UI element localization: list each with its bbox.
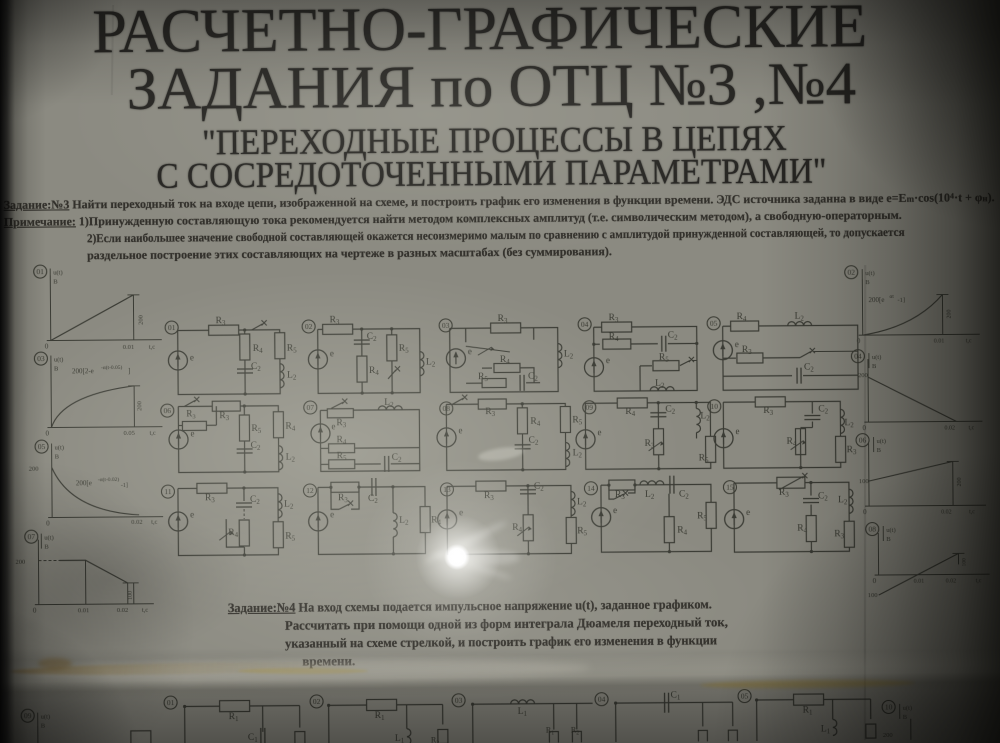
svg-text:L2: L2 [284, 500, 294, 511]
svg-text:L2: L2 [399, 516, 409, 527]
svg-text:08: 08 [868, 525, 876, 534]
svg-text:R5: R5 [659, 353, 669, 364]
svg-text:B: B [903, 714, 908, 721]
svg-text:e: e [331, 421, 335, 431]
svg-text:09: 09 [24, 711, 32, 720]
svg-text:]: ] [128, 367, 130, 375]
svg-text:R4: R4 [228, 528, 238, 539]
svg-text:e: e [459, 507, 463, 517]
svg-text:C1: C1 [248, 733, 258, 743]
svg-text:B: B [886, 536, 891, 543]
svg-text:t,c: t,c [149, 430, 155, 437]
svg-text:e: e [735, 339, 739, 349]
svg-text:11: 11 [164, 487, 172, 496]
svg-text:L2: L2 [577, 497, 587, 508]
svg-text:R5: R5 [572, 415, 582, 426]
svg-text:R3: R3 [834, 529, 844, 540]
svg-text:R3: R3 [742, 345, 752, 356]
svg-text:0: 0 [45, 430, 49, 438]
svg-text:06: 06 [164, 406, 172, 415]
svg-text:C2: C2 [668, 331, 678, 342]
svg-text:L2: L2 [573, 448, 583, 459]
svg-text:t,c: t,c [969, 509, 975, 515]
svg-text:R3: R3 [847, 445, 857, 456]
svg-text:04: 04 [581, 320, 589, 329]
svg-text:C2: C2 [250, 495, 260, 506]
svg-text:-1]: -1] [897, 297, 905, 304]
svg-text:200[e: 200[e [868, 296, 884, 304]
svg-text:R4: R4 [530, 417, 540, 428]
svg-text:R3: R3 [330, 315, 340, 326]
svg-text:C2: C2 [679, 490, 689, 501]
svg-text:L2: L2 [286, 453, 296, 464]
svg-text:R3: R3 [338, 493, 348, 504]
svg-text:B: B [54, 365, 59, 372]
svg-text:02: 02 [313, 697, 321, 706]
svg-text:C2: C2 [529, 436, 539, 447]
svg-text:R4: R4 [369, 366, 379, 377]
svg-text:R1: R1 [803, 706, 813, 717]
svg-text:10: 10 [711, 402, 719, 411]
svg-text:200: 200 [29, 466, 39, 473]
svg-text:u(t): u(t) [886, 527, 895, 534]
svg-text:L2: L2 [287, 371, 297, 382]
svg-text:u(t): u(t) [877, 438, 886, 445]
svg-text:C2: C2 [804, 363, 814, 374]
svg-text:03: 03 [37, 354, 45, 363]
svg-text:0.01: 0.01 [914, 579, 925, 585]
svg-text:-1]: -1] [121, 483, 128, 489]
svg-text:R3: R3 [216, 316, 226, 327]
svg-text:R3: R3 [498, 314, 508, 325]
svg-text:04: 04 [598, 695, 606, 704]
svg-text:e: e [190, 352, 194, 362]
svg-text:R3: R3 [763, 406, 773, 417]
svg-text:e: e [746, 507, 750, 517]
svg-text:L2: L2 [384, 398, 394, 409]
svg-text:e: e [190, 428, 194, 438]
svg-text:R4: R4 [512, 523, 522, 534]
svg-text:200: 200 [858, 372, 868, 379]
svg-text:C2: C2 [392, 453, 402, 464]
svg-text:12: 12 [306, 486, 314, 495]
svg-text:R5: R5 [478, 372, 488, 383]
svg-text:B: B [872, 363, 877, 370]
svg-text:t,c: t,c [976, 578, 982, 584]
svg-text:e: e [330, 509, 334, 519]
svg-text:R3: R3 [336, 418, 346, 429]
svg-text:B: B [44, 544, 49, 551]
svg-text:u(t): u(t) [55, 444, 64, 451]
svg-text:R5: R5 [577, 526, 587, 537]
svg-text:e: e [597, 427, 601, 437]
svg-text:0: 0 [45, 343, 49, 351]
svg-text:R5: R5 [287, 344, 297, 355]
svg-text:C2: C2 [534, 482, 544, 493]
svg-text:05: 05 [38, 442, 46, 451]
svg-text:100: 100 [868, 592, 878, 599]
svg-text:02: 02 [847, 268, 855, 277]
svg-text:10: 10 [885, 702, 893, 711]
svg-text:R4: R4 [285, 422, 295, 433]
svg-text:01: 01 [168, 323, 176, 332]
svg-text:L2: L2 [795, 312, 805, 323]
svg-text:0.01: 0.01 [123, 344, 134, 351]
svg-text:100: 100 [128, 591, 134, 600]
svg-text:R5: R5 [285, 532, 295, 543]
svg-text:0.02: 0.02 [946, 578, 957, 584]
svg-text:e: e [735, 426, 739, 436]
svg-text:u(t): u(t) [44, 535, 53, 542]
svg-text:0: 0 [873, 577, 877, 585]
svg-text:t,c: t,c [966, 338, 972, 344]
svg-text:0.02: 0.02 [131, 519, 142, 526]
svg-text:200[e: 200[e [76, 479, 92, 487]
svg-text:0.05: 0.05 [123, 430, 134, 437]
svg-text:e: e [613, 505, 617, 515]
svg-text:L2: L2 [645, 490, 655, 501]
svg-text:C2: C2 [368, 494, 378, 505]
svg-text:e: e [606, 355, 610, 365]
svg-text:u(t): u(t) [54, 356, 63, 363]
svg-text:u(t): u(t) [41, 714, 50, 721]
svg-text:B: B [55, 453, 60, 460]
svg-text:t,c: t,c [151, 519, 157, 526]
svg-text:R5: R5 [251, 424, 261, 435]
svg-text:200: 200 [947, 309, 953, 318]
svg-text:R3: R3 [205, 493, 215, 504]
svg-text:0.02: 0.02 [944, 425, 955, 431]
svg-text:e: e [468, 346, 472, 356]
svg-text:L2: L2 [426, 358, 436, 369]
svg-text:R4: R4 [737, 312, 747, 323]
svg-text:t,c: t,c [142, 607, 148, 614]
svg-text:03: 03 [442, 321, 450, 330]
svg-text:C2: C2 [665, 405, 675, 416]
svg-text:200: 200 [15, 559, 25, 566]
svg-text:L1: L1 [821, 724, 830, 735]
svg-text:100: 100 [961, 558, 967, 567]
svg-text:e: e [458, 425, 462, 435]
svg-text:R1: R1 [375, 711, 385, 722]
svg-text:B: B [41, 723, 46, 730]
svg-text:t,c: t,c [149, 344, 155, 351]
svg-text:L2: L2 [844, 418, 854, 429]
svg-text:R3: R3 [186, 408, 195, 420]
svg-text:B: B [877, 447, 882, 454]
svg-text:αt: αt [889, 294, 894, 300]
svg-text:u(t): u(t) [872, 354, 881, 361]
svg-text:01: 01 [167, 698, 175, 707]
svg-text:01: 01 [36, 267, 44, 276]
svg-text:R3: R3 [609, 313, 619, 324]
svg-text:02: 02 [305, 322, 313, 331]
svg-text:C2: C2 [528, 372, 538, 383]
svg-text:05: 05 [710, 319, 718, 328]
svg-text:200: 200 [138, 315, 145, 325]
svg-text:200: 200 [957, 477, 963, 486]
svg-text:15: 15 [726, 483, 734, 492]
svg-text:0.02: 0.02 [941, 509, 952, 515]
svg-text:B: B [53, 278, 58, 285]
svg-text:e: e [190, 509, 194, 519]
svg-text:L1: L1 [518, 707, 527, 718]
svg-text:0.01: 0.01 [78, 607, 89, 614]
svg-text:05: 05 [741, 692, 749, 701]
svg-text:u(t): u(t) [865, 270, 874, 277]
svg-text:0.01: 0.01 [934, 339, 945, 345]
svg-text:07: 07 [307, 403, 315, 412]
svg-text:100: 100 [859, 478, 869, 485]
svg-text:0: 0 [33, 607, 37, 615]
svg-text:0: 0 [46, 520, 50, 528]
svg-text:-α(t-0.05): -α(t-0.05) [101, 364, 123, 371]
svg-text:L2: L2 [700, 411, 710, 422]
svg-text:u(t): u(t) [903, 705, 912, 712]
svg-text:07: 07 [28, 532, 36, 541]
svg-text:14: 14 [587, 484, 595, 493]
svg-text:R4: R4 [337, 435, 347, 446]
svg-text:L2: L2 [838, 495, 848, 506]
svg-text:200: 200 [136, 401, 143, 411]
svg-text:R3: R3 [219, 411, 229, 422]
svg-text:R1: R1 [229, 712, 239, 723]
svg-text:0.02: 0.02 [117, 607, 128, 614]
svg-text:C2: C2 [818, 404, 828, 415]
svg-text:C2: C2 [818, 491, 828, 502]
svg-text:L2: L2 [564, 349, 574, 360]
svg-text:R3: R3 [484, 491, 494, 502]
svg-text:C2: C2 [367, 332, 377, 343]
svg-text:t,c: t,c [968, 425, 974, 431]
svg-text:200: 200 [883, 732, 893, 739]
svg-text:R4: R4 [609, 332, 619, 343]
svg-text:R4: R4 [253, 344, 263, 355]
svg-text:-α(t-0.02): -α(t-0.02) [98, 476, 120, 483]
svg-text:R4: R4 [677, 526, 687, 537]
svg-text:L2: L2 [655, 379, 665, 390]
svg-text:u(t): u(t) [53, 269, 62, 276]
svg-text:09: 09 [586, 403, 594, 412]
svg-text:L1: L1 [395, 734, 404, 743]
svg-text:C2: C2 [251, 441, 261, 452]
svg-text:200[2-e: 200[2-e [72, 367, 94, 375]
svg-text:C2: C2 [251, 362, 261, 373]
svg-text:R4: R4 [500, 355, 510, 366]
svg-text:R4: R4 [625, 407, 635, 418]
svg-text:e: e [330, 348, 334, 358]
svg-text:R5: R5 [399, 344, 409, 355]
svg-text:03: 03 [455, 696, 463, 705]
